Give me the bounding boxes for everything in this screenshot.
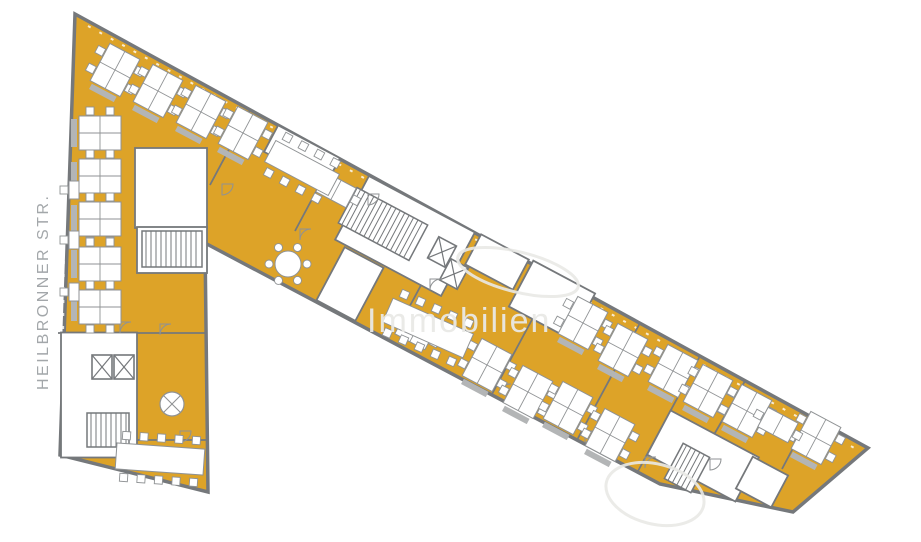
chair	[60, 288, 68, 296]
chair	[189, 478, 198, 487]
watermark-text: Immobilien	[367, 302, 551, 340]
chair	[86, 325, 94, 333]
street-label: HEILBRONNER STR.	[35, 194, 52, 390]
desk-surface	[69, 181, 79, 199]
chair	[119, 473, 128, 482]
floor-plan-generated-layer	[58, 14, 868, 512]
staircase	[142, 231, 202, 267]
elevator	[114, 355, 134, 379]
desk-surface	[69, 231, 79, 249]
round-table	[160, 392, 184, 416]
staircase	[87, 413, 129, 447]
chair	[275, 276, 283, 284]
stair-outline	[87, 413, 129, 447]
elevator	[92, 355, 112, 379]
chair	[86, 238, 94, 246]
sideboard	[71, 205, 77, 233]
chair	[106, 193, 114, 201]
desk-surface	[69, 283, 79, 301]
chair	[106, 325, 114, 333]
chair	[157, 434, 166, 443]
chair	[106, 281, 114, 289]
chair	[106, 150, 114, 158]
sideboard	[71, 119, 77, 147]
chair	[172, 477, 181, 486]
chair	[303, 260, 311, 268]
sideboard	[71, 250, 77, 278]
single-desk	[60, 181, 79, 199]
chair	[60, 186, 68, 194]
chair	[154, 476, 163, 485]
chair	[106, 238, 114, 246]
chair	[122, 431, 131, 440]
chair	[140, 433, 149, 442]
chair	[175, 435, 184, 444]
chair	[86, 193, 94, 201]
chair	[106, 107, 114, 115]
chair	[275, 244, 283, 252]
core-room	[135, 148, 207, 228]
chair	[294, 276, 302, 284]
chair	[86, 150, 94, 158]
floor-plan-drawing: Immobilien HEILBRONNER STR.	[0, 0, 921, 542]
chair	[137, 474, 146, 483]
floor-plan-page: Immobilien HEILBRONNER STR.	[0, 0, 921, 542]
table-surface	[275, 251, 301, 277]
single-desk	[60, 231, 79, 249]
chair	[86, 107, 94, 115]
chair	[192, 436, 201, 445]
table-surface	[115, 443, 205, 475]
chair	[60, 236, 68, 244]
single-desk	[60, 283, 79, 301]
chair	[265, 260, 273, 268]
chair	[86, 281, 94, 289]
chair	[294, 244, 302, 252]
